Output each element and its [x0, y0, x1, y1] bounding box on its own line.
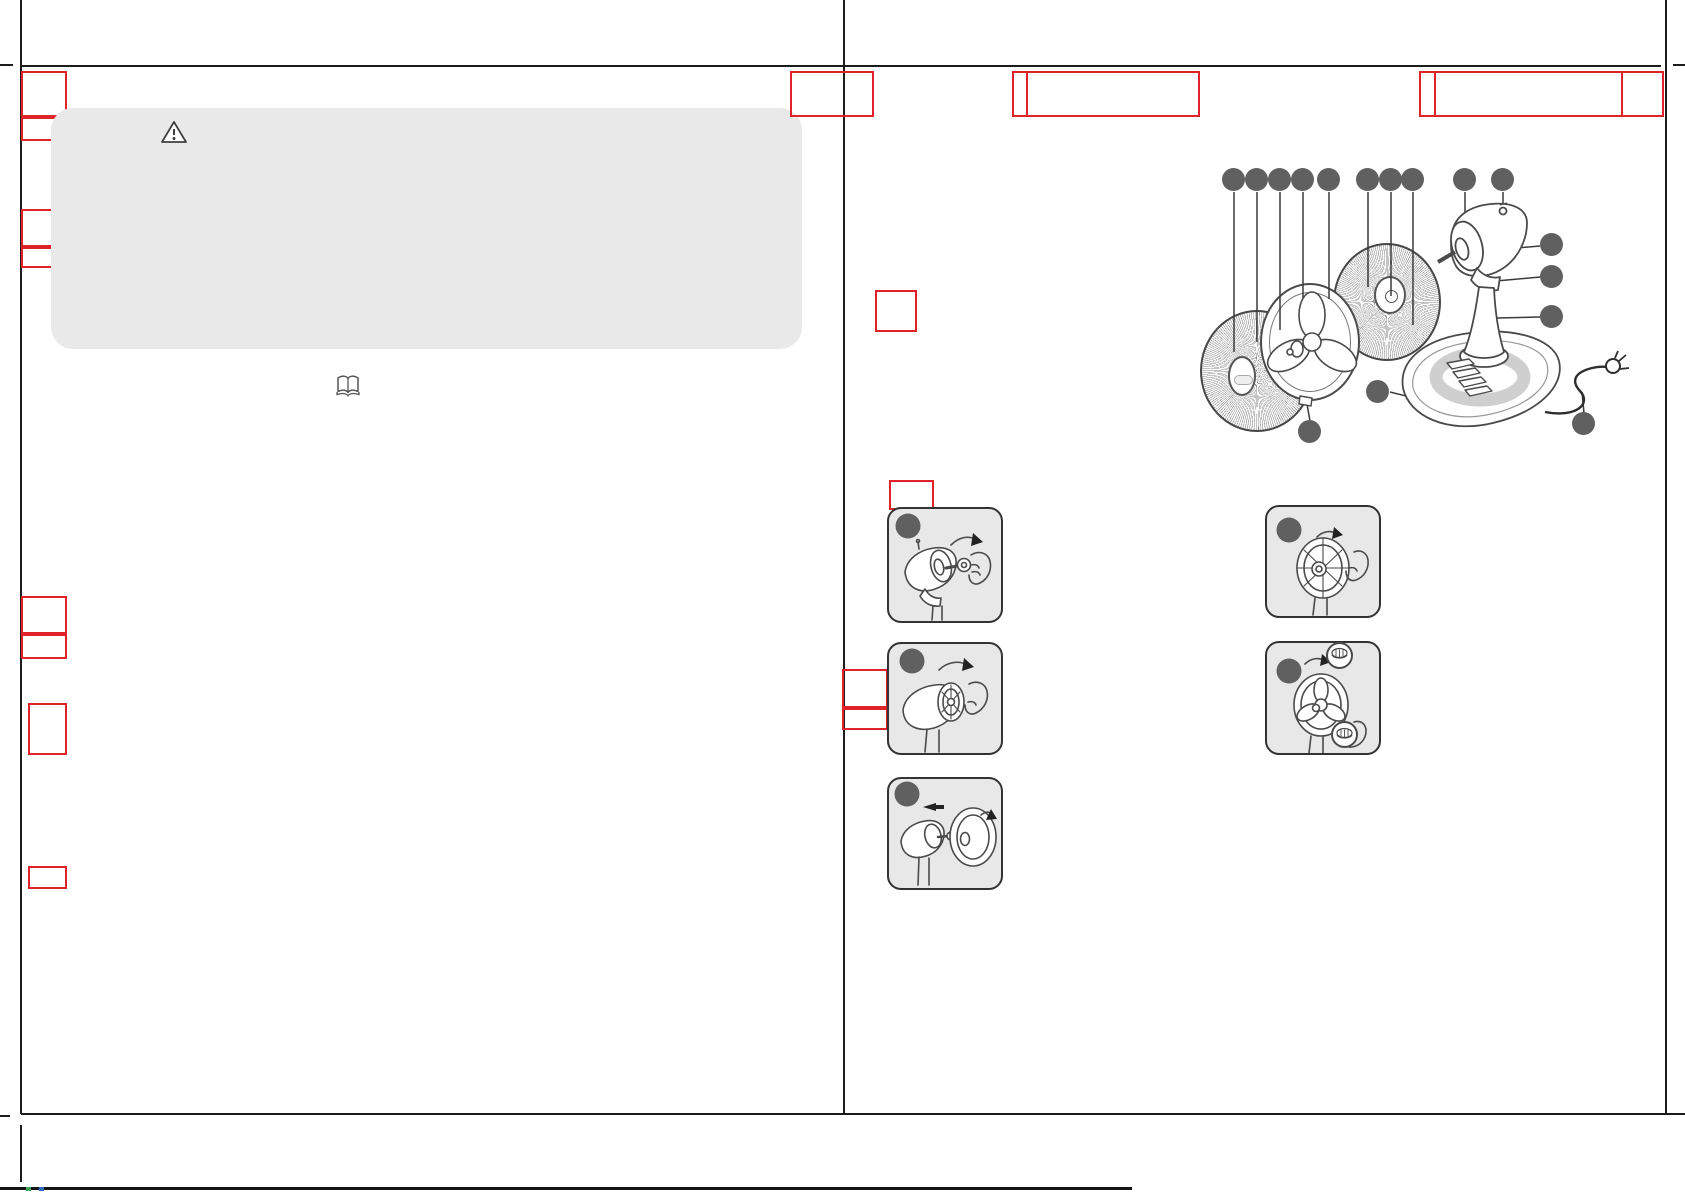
step-number-circle: [895, 782, 920, 807]
rear-grille-hub: [1374, 276, 1406, 314]
assembly-step-panel-4: [1265, 505, 1381, 618]
crop-dash-top-right: [1673, 64, 1685, 66]
placeholder-box: [21, 634, 67, 659]
registration-mark-blue: [39, 1187, 44, 1191]
step-number-circle: [900, 649, 925, 674]
part-callout-dot: [1366, 380, 1389, 403]
placeholder-box: [790, 71, 874, 117]
open-book-icon: [335, 373, 361, 398]
step-number-circle: [896, 514, 921, 539]
part-callout-dot: [1268, 168, 1291, 191]
part-callout-dot: [1298, 420, 1321, 443]
step1-illustration: [889, 509, 1001, 621]
part-callout-dot: [1540, 305, 1563, 328]
placeholder-box: [875, 290, 917, 332]
assembly-step-panel-3: [887, 777, 1003, 890]
warning-panel: [51, 108, 802, 349]
step3-illustration: [889, 779, 1001, 888]
assembly-step-panel-5: [1265, 641, 1381, 755]
motor-unit: [1438, 203, 1527, 291]
page-left-line: [20, 0, 22, 1114]
assembly-step-panel-1: [887, 507, 1003, 623]
detail-callout-circle: [1331, 721, 1358, 748]
part-callout-dot: [1491, 168, 1514, 191]
part-callout-dot: [1356, 168, 1379, 191]
direction-arrow: [923, 803, 936, 811]
placeholder-box: [1419, 71, 1664, 117]
placeholder-box: [1012, 71, 1200, 117]
placeholder-box: [842, 669, 888, 708]
part-callout-dot: [1222, 168, 1245, 191]
part-callout-dot: [1453, 168, 1476, 191]
rotate-arrow: [1332, 527, 1343, 539]
hand: [965, 682, 987, 714]
part-callout-dot: [1572, 412, 1595, 435]
crop-seg-bottom-left: [20, 1125, 22, 1182]
manual-spread: [0, 0, 1685, 1192]
page-right-line: [1665, 0, 1667, 1114]
warning-triangle-icon: [160, 119, 188, 145]
step-number-circle: [1277, 659, 1302, 684]
grille-ring: [1260, 283, 1360, 401]
rear-hub-center: [1385, 290, 1398, 303]
placeholder-box: [842, 708, 888, 730]
power-cord: [1545, 351, 1629, 413]
placeholder-divider: [1434, 73, 1436, 115]
base-buttons: [1447, 359, 1492, 396]
part-callout-dot: [1379, 168, 1402, 191]
placeholder-box: [21, 596, 67, 634]
grille-ring-inner: [1269, 292, 1351, 392]
page-bottom-line: [21, 1113, 1685, 1115]
step5-illustration: [1267, 643, 1380, 753]
placeholder-box: [28, 703, 67, 755]
crop-tick-top-left: [0, 64, 13, 66]
placeholder-divider: [1026, 73, 1028, 115]
hand: [969, 553, 991, 584]
page-center-divider: [843, 0, 845, 1114]
part-callout-dot: [1245, 168, 1268, 191]
print-edge-line: [0, 1187, 1132, 1190]
plug-prongs: [1615, 351, 1629, 369]
registration-mark-green: [26, 1187, 31, 1191]
crop-tick-bottom-left: [0, 1115, 10, 1117]
part-callout-dot: [1540, 233, 1563, 256]
part-callout-dot: [1291, 168, 1314, 191]
placeholder-divider: [1621, 73, 1623, 115]
page-top-line: [21, 65, 1661, 67]
step2-illustration: [889, 644, 1001, 753]
step-number-circle: [1277, 518, 1302, 543]
rotate-arrow: [971, 533, 983, 546]
part-callout-dot: [1317, 168, 1340, 191]
detail-callout-circle: [1326, 642, 1353, 669]
placeholder-box: [889, 480, 934, 510]
part-callout-dot: [1540, 265, 1563, 288]
placeholder-box: [21, 71, 67, 117]
step4-illustration: [1267, 507, 1380, 616]
placeholder-box: [28, 866, 67, 889]
rotate-arrow: [962, 658, 974, 671]
front-grille-hub: [1228, 356, 1256, 396]
assembly-step-panel-2: [887, 642, 1003, 755]
brand-badge: [1234, 375, 1253, 385]
part-callout-dot: [1401, 168, 1424, 191]
